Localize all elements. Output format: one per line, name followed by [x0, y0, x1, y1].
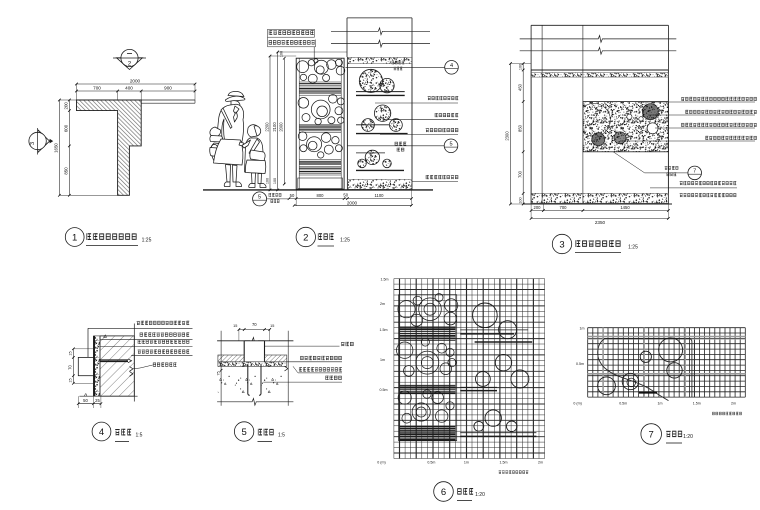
svg-text:3: 3 — [30, 142, 36, 145]
svg-text:2m: 2m — [731, 402, 736, 406]
svg-text:2: 2 — [128, 61, 132, 68]
svg-text:2m: 2m — [380, 302, 385, 306]
svg-text:450: 450 — [517, 83, 522, 91]
svg-text:400: 400 — [125, 85, 133, 90]
svg-text:1100: 1100 — [374, 193, 384, 198]
svg-text:2350: 2350 — [595, 220, 606, 225]
svg-text:100: 100 — [273, 178, 277, 184]
svg-text:50: 50 — [83, 398, 88, 403]
svg-text:15: 15 — [233, 324, 237, 328]
svg-text:1:25: 1:25 — [340, 237, 350, 243]
svg-text:850: 850 — [64, 167, 69, 175]
svg-text:70: 70 — [252, 322, 257, 327]
svg-text:25: 25 — [95, 398, 100, 403]
svg-text:100: 100 — [518, 197, 522, 203]
svg-text:1m: 1m — [380, 358, 385, 362]
svg-text:1m: 1m — [580, 326, 585, 330]
svg-text:700: 700 — [517, 170, 522, 178]
svg-text:70: 70 — [68, 365, 73, 370]
svg-text:2000: 2000 — [130, 78, 141, 83]
svg-text:1450: 1450 — [620, 205, 630, 210]
svg-text:100: 100 — [265, 178, 269, 184]
svg-text:7: 7 — [649, 429, 654, 440]
svg-text:1.5m: 1.5m — [500, 461, 508, 465]
svg-text:0.5m: 0.5m — [380, 388, 388, 392]
svg-text:0.5m: 0.5m — [576, 362, 584, 366]
svg-text:15: 15 — [69, 351, 73, 355]
svg-text:75: 75 — [216, 371, 220, 375]
svg-text:900: 900 — [164, 85, 172, 90]
svg-text:5: 5 — [258, 195, 261, 201]
svg-text:2000: 2000 — [347, 200, 358, 205]
svg-text:50: 50 — [290, 193, 295, 198]
svg-text:7: 7 — [693, 169, 696, 175]
svg-text:200: 200 — [534, 205, 542, 210]
svg-text:2m: 2m — [538, 461, 543, 465]
svg-text:50: 50 — [343, 192, 348, 197]
svg-text:0.5m: 0.5m — [427, 461, 435, 465]
svg-text:1650: 1650 — [54, 143, 59, 153]
svg-text:1:25: 1:25 — [628, 244, 638, 250]
svg-text:1.5m: 1.5m — [381, 277, 389, 281]
svg-text:4: 4 — [99, 427, 104, 438]
svg-text:600: 600 — [64, 124, 69, 132]
svg-text:3: 3 — [559, 239, 564, 250]
svg-text:6: 6 — [441, 487, 446, 498]
svg-text:2100: 2100 — [272, 122, 277, 132]
svg-text:1:5: 1:5 — [136, 432, 143, 438]
svg-text:0.5m: 0.5m — [619, 402, 627, 406]
svg-text:0 (m): 0 (m) — [377, 461, 385, 465]
svg-text:5: 5 — [449, 142, 452, 148]
svg-text:15: 15 — [69, 378, 73, 382]
svg-text:2000: 2000 — [279, 122, 284, 132]
svg-text:1m: 1m — [464, 461, 469, 465]
svg-text:1m: 1m — [658, 402, 663, 406]
svg-text:1:5: 1:5 — [278, 432, 285, 438]
svg-text:2: 2 — [303, 232, 308, 243]
svg-text:2200: 2200 — [264, 122, 269, 132]
svg-text:1:20: 1:20 — [683, 434, 693, 440]
svg-text:800: 800 — [317, 193, 325, 198]
svg-text:0 (m): 0 (m) — [573, 402, 581, 406]
svg-text:1:20: 1:20 — [475, 492, 485, 498]
svg-text:700: 700 — [560, 205, 568, 210]
svg-text:100: 100 — [280, 51, 284, 57]
svg-text:1.5m: 1.5m — [380, 328, 388, 332]
svg-text:1: 1 — [72, 232, 77, 243]
svg-text:5: 5 — [241, 427, 246, 438]
svg-text:1:25: 1:25 — [142, 237, 152, 243]
svg-text:1.5m: 1.5m — [693, 402, 701, 406]
svg-text:2300: 2300 — [505, 131, 510, 141]
svg-text:850: 850 — [517, 124, 522, 132]
svg-text:700: 700 — [93, 85, 101, 90]
svg-text:200: 200 — [64, 102, 69, 110]
svg-text:4: 4 — [450, 63, 453, 69]
svg-text:100: 100 — [518, 64, 522, 70]
svg-text:15: 15 — [270, 324, 274, 328]
